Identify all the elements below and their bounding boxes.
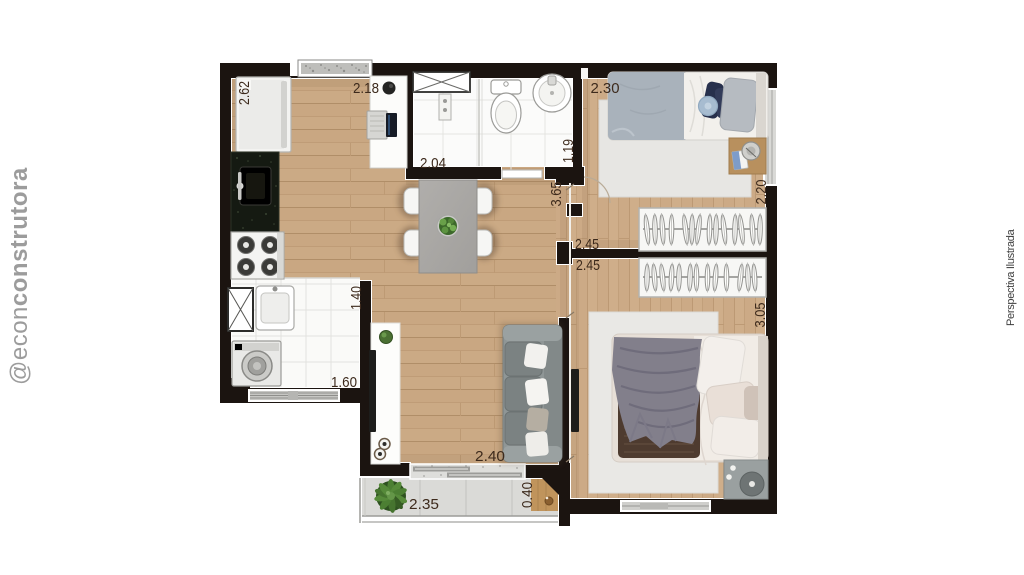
svg-text:2.40: 2.40 [475, 448, 505, 465]
svg-text:@econconstrutora: @econconstrutora [6, 167, 33, 385]
svg-text:2.62: 2.62 [236, 81, 253, 105]
svg-text:1.19: 1.19 [560, 139, 577, 163]
svg-text:1.60: 1.60 [331, 374, 357, 391]
svg-text:2.18: 2.18 [353, 80, 379, 97]
svg-text:2.35: 2.35 [409, 496, 439, 513]
svg-text:2.04: 2.04 [420, 155, 446, 172]
svg-text:2.30: 2.30 [591, 80, 620, 97]
svg-text:2.20: 2.20 [753, 180, 770, 205]
svg-text:3.65: 3.65 [548, 182, 565, 207]
svg-text:2.45: 2.45 [575, 236, 599, 253]
svg-text:Perspectiva Ilustrada: Perspectiva Ilustrada [1005, 228, 1017, 326]
svg-text:2.45: 2.45 [576, 257, 600, 274]
svg-text:1.40: 1.40 [348, 286, 365, 310]
svg-text:0.40: 0.40 [519, 482, 536, 508]
svg-text:3.05: 3.05 [752, 303, 769, 328]
